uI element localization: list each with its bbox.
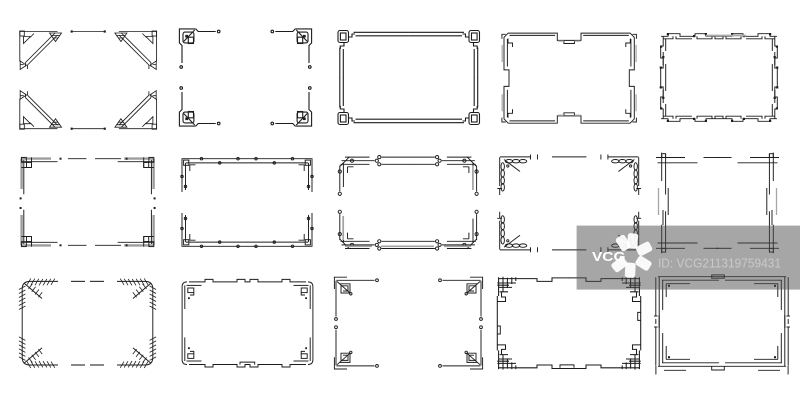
svg-text:ID: VCG211319759431: ID: VCG211319759431 [658,255,781,270]
svg-text:VCG: VCG [592,249,626,264]
